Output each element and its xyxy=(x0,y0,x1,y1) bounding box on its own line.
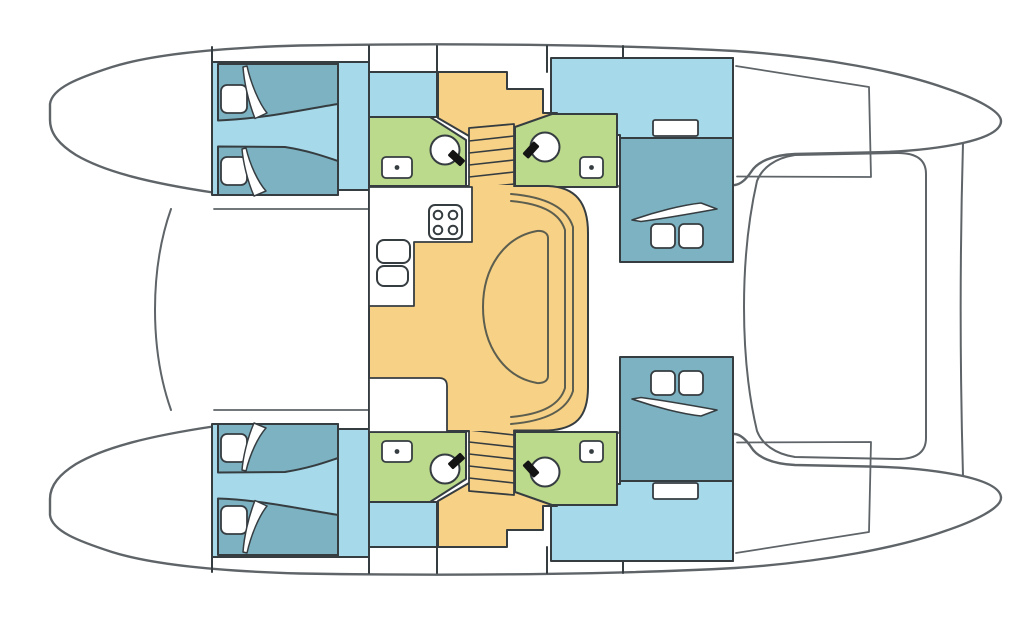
floor-plan-svg xyxy=(0,0,1033,619)
burner-icon xyxy=(434,211,443,220)
wardrobe xyxy=(338,62,369,190)
pillow-icon xyxy=(679,224,703,248)
burner-icon xyxy=(434,226,443,235)
stove-icon xyxy=(429,205,462,239)
dressing-area-floor xyxy=(369,72,437,117)
sink-drain-icon xyxy=(395,165,400,170)
chart-table xyxy=(369,378,447,432)
shelf xyxy=(653,120,698,136)
pillow-icon xyxy=(221,85,247,113)
sink-basin-icon xyxy=(377,240,410,263)
cockpit-outline xyxy=(744,153,926,459)
aft-berth xyxy=(620,138,733,262)
catamaran-floor-plan xyxy=(0,0,1033,619)
trampoline-edge xyxy=(155,209,171,410)
burner-icon xyxy=(449,226,458,235)
sink-drain-icon xyxy=(589,165,594,170)
burner-icon xyxy=(449,211,458,220)
sink-basin-icon xyxy=(377,266,408,286)
transom-line xyxy=(961,143,963,476)
pillow-icon xyxy=(651,224,675,248)
